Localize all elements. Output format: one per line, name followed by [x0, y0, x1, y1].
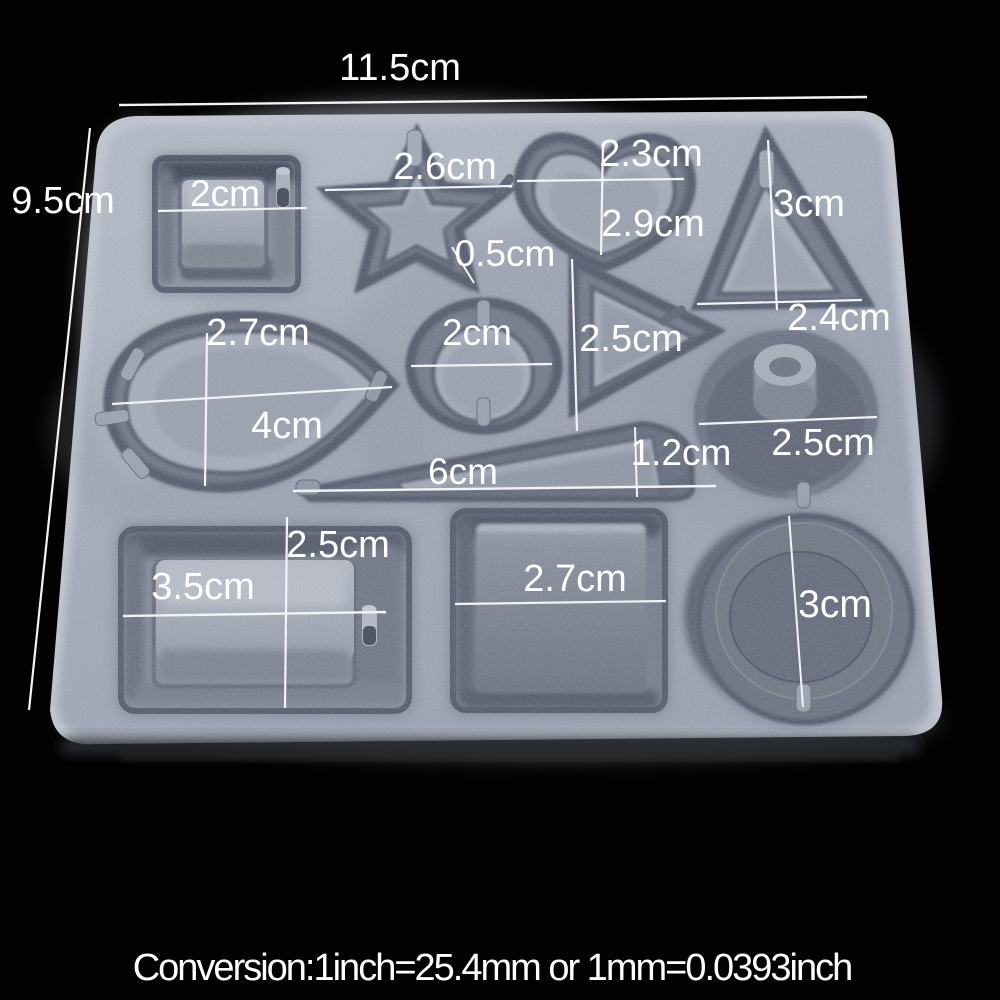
- svg-text:1.2cm: 1.2cm: [631, 432, 732, 473]
- svg-text:Conversion:1inch=25.4mm or 1mm: Conversion:1inch=25.4mm or 1mm=0.0393inc…: [133, 947, 852, 989]
- svg-text:9.5cm: 9.5cm: [11, 180, 114, 222]
- svg-text:2.3cm: 2.3cm: [599, 133, 702, 175]
- svg-text:6cm: 6cm: [428, 451, 498, 492]
- svg-text:2.5cm: 2.5cm: [286, 524, 389, 566]
- svg-text:0.5cm: 0.5cm: [455, 233, 556, 274]
- svg-text:4cm: 4cm: [251, 405, 323, 447]
- svg-text:2.7cm: 2.7cm: [206, 312, 309, 354]
- svg-text:2.6cm: 2.6cm: [393, 146, 496, 188]
- svg-text:2.9cm: 2.9cm: [601, 203, 704, 245]
- svg-text:3cm: 3cm: [798, 583, 872, 626]
- svg-text:3cm: 3cm: [773, 183, 845, 225]
- svg-text:2.7cm: 2.7cm: [523, 558, 626, 600]
- svg-text:2cm: 2cm: [190, 173, 260, 214]
- svg-text:3.5cm: 3.5cm: [151, 566, 254, 608]
- svg-text:11.5cm: 11.5cm: [339, 47, 461, 89]
- svg-text:2cm: 2cm: [442, 312, 512, 353]
- svg-text:2.5cm: 2.5cm: [771, 422, 874, 464]
- svg-text:2.5cm: 2.5cm: [579, 318, 682, 360]
- svg-text:2.4cm: 2.4cm: [787, 297, 890, 339]
